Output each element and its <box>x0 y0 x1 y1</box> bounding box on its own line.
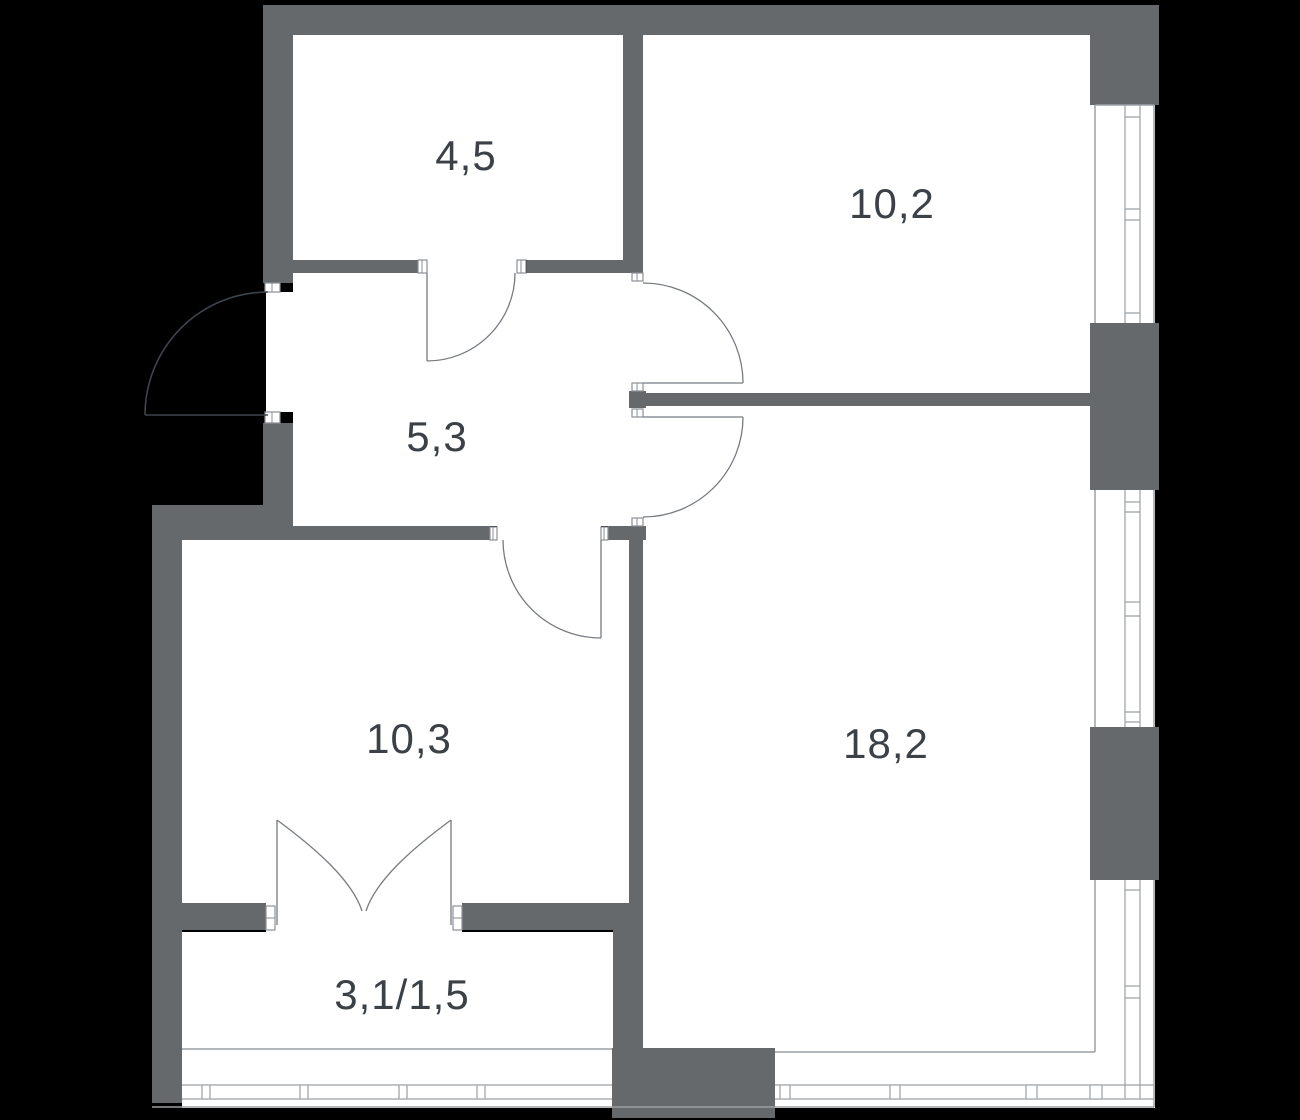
wall-left-upper <box>263 5 293 283</box>
room-area-label-balcony: 3,1/1,5 <box>334 971 469 1019</box>
wall-window-pier-1 <box>1090 323 1159 490</box>
wall-storage-bottom-right <box>527 260 623 273</box>
storage-door-opening <box>427 260 517 273</box>
entrance-door-arc <box>145 292 268 415</box>
balcony-door-opening <box>266 903 462 932</box>
wall-storage-bottom-left <box>293 260 418 273</box>
hallway-floor <box>293 273 643 526</box>
wall-left-mid <box>263 423 293 507</box>
wall-hall-bottom-right <box>608 526 646 540</box>
wall-storage-bedroom <box>623 35 643 273</box>
wall-bottom-block <box>612 1048 775 1118</box>
floor-plan: 4,5 10,2 5,3 10,3 18,2 3,1/1,5 <box>0 0 1300 1120</box>
wall-hall-bottom-left <box>293 526 490 540</box>
room-area-label-storage: 4,5 <box>435 132 496 180</box>
wall-left-lower <box>152 505 182 1103</box>
wall-kitchen-living-lower <box>613 923 643 1048</box>
wall-window-pier-2 <box>1090 727 1159 880</box>
wall-kitchen-living-upper <box>629 540 643 923</box>
room-area-label-living: 18,2 <box>843 720 929 768</box>
wall-kitchen-bottom-left <box>182 903 266 930</box>
window-band-right <box>1095 105 1155 1108</box>
wall-top-right-block <box>1090 5 1159 105</box>
kitchen-door-opening <box>497 526 601 540</box>
room-area-label-kitchen: 10,3 <box>366 715 452 763</box>
entrance-opening <box>266 292 293 412</box>
wall-kitchen-bottom-right <box>462 903 630 930</box>
room-area-label-hallway: 5,3 <box>406 413 467 461</box>
room-area-label-bedroom: 10,2 <box>849 180 935 228</box>
wall-top <box>263 5 1090 35</box>
wall-bedroom-living <box>643 393 1091 406</box>
